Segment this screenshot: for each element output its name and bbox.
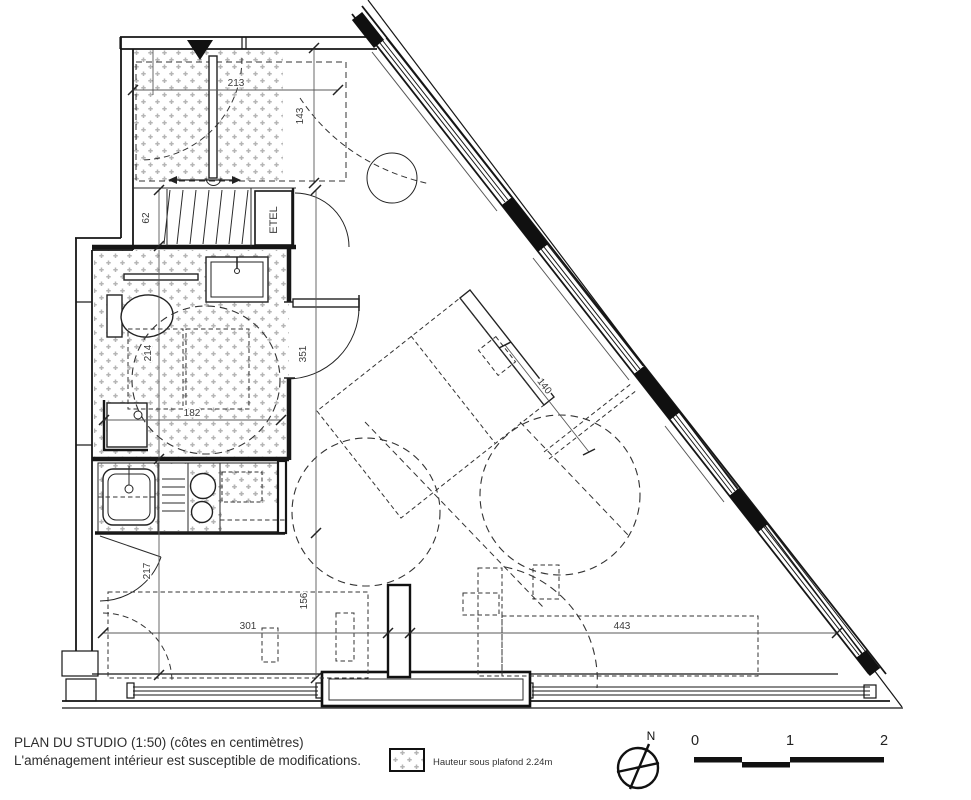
diagonal-facade-wall [352, 0, 902, 707]
turning-circle [480, 415, 640, 575]
bathroom-door [287, 295, 359, 379]
bed-outline [317, 298, 544, 518]
counter-end-panel [278, 461, 286, 533]
scale-tick-1: 1 [786, 733, 794, 749]
dim-living-wall-upper: 351 [298, 345, 309, 362]
burner-icon [191, 474, 216, 499]
scale-bar: 0 1 2 [691, 733, 888, 768]
burner-icon [192, 502, 213, 523]
sheet-title: PLAN DU STUDIO (1:50) (côtes en centimèt… [14, 735, 304, 750]
dim-bathroom-width: 182 [184, 408, 201, 419]
floor-plan-drawing: ETEL [0, 0, 971, 800]
shower [104, 400, 148, 451]
appliance-zone [222, 472, 262, 502]
legend-label: Hauteur sous plafond 2.24m [433, 757, 552, 768]
dim-bottom-left: 301 [240, 621, 257, 632]
dim-living-wall-lower: 156 [299, 592, 310, 609]
column-circle [367, 153, 417, 203]
dim-bathroom-length: 214 [143, 344, 154, 361]
utility-closet-label: ETEL [268, 206, 280, 234]
bathroom-door-swing [287, 307, 359, 379]
window-swing-arc [300, 98, 430, 184]
wall-stub [388, 585, 410, 677]
sheet-footer: PLAN DU STUDIO (1:50) (côtes en centimèt… [14, 729, 888, 789]
bed [317, 290, 554, 518]
entry-door-leaf [209, 56, 217, 178]
bathroom-door-leaf [293, 299, 359, 307]
dim-kitchen-wall: 217 [142, 562, 153, 579]
legend-hatch-swatch [390, 749, 424, 771]
dim-entry-width: 213 [228, 78, 245, 89]
balcony-door-swing [505, 567, 597, 688]
grab-bar [124, 274, 198, 280]
closet-door-swing [295, 193, 349, 247]
legend: Hauteur sous plafond 2.24m [390, 749, 552, 771]
turning-circle [292, 438, 440, 586]
scale-tick-2: 2 [880, 733, 888, 749]
dim-bottom-right: 443 [614, 621, 631, 632]
desk-outline [108, 592, 368, 678]
balcony-door-sill [322, 672, 530, 706]
dim-wardrobe-depth: 62 [141, 212, 152, 224]
floor-plan-sheet: ETEL [0, 0, 971, 800]
toilet-tank [107, 295, 122, 337]
dim-entry-depth: 143 [295, 107, 306, 124]
wardrobe [164, 189, 248, 246]
kitchen-door-leaf [100, 536, 161, 557]
north-compass: N [617, 729, 659, 789]
scale-tick-0: 0 [691, 733, 699, 749]
compass-north-label: N [647, 729, 656, 743]
utility-closet: ETEL [255, 191, 349, 247]
sheet-subtitle: L'aménagement intérieur est susceptible … [14, 753, 361, 768]
kitchen-sink [103, 466, 155, 525]
